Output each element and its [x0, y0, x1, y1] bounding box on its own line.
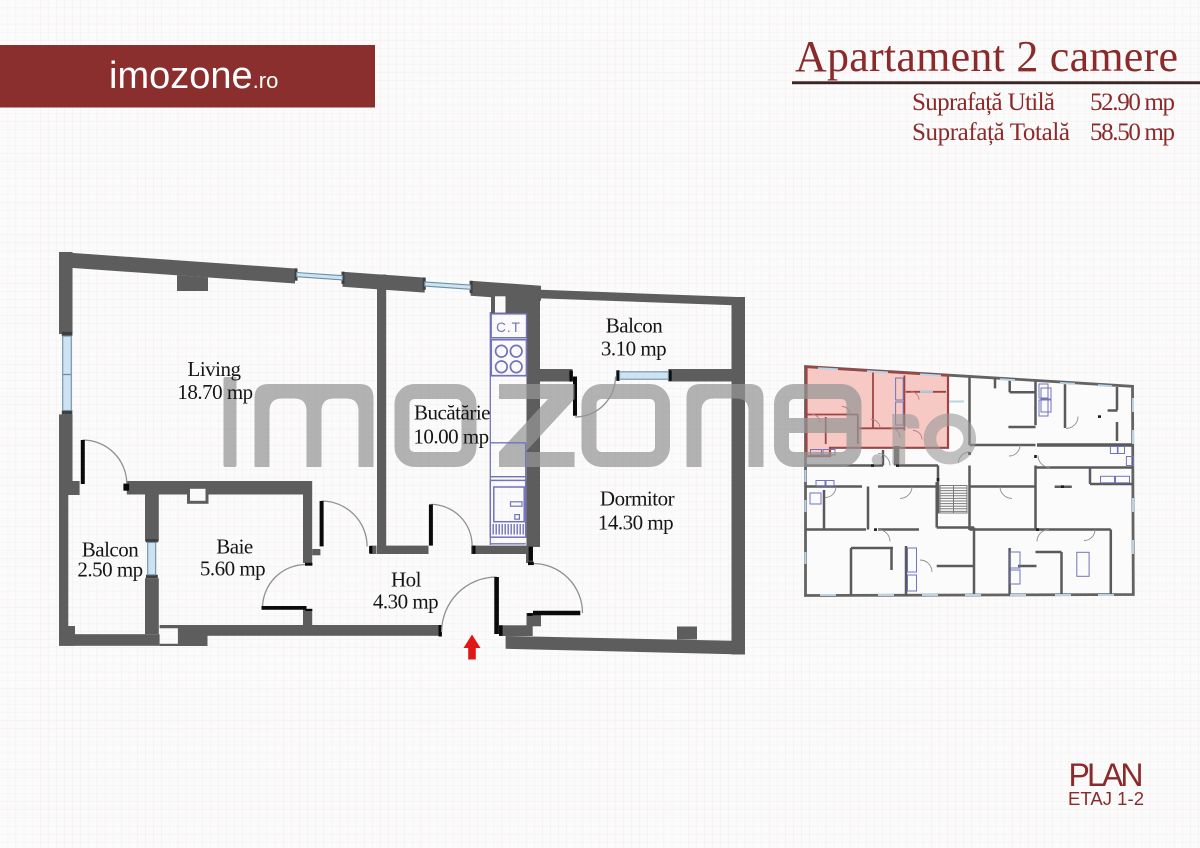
svg-text:Suprafață Utilă: Suprafață Utilă — [912, 89, 1055, 116]
svg-text:3.10 mp: 3.10 mp — [601, 337, 666, 361]
svg-text:58.50 mp: 58.50 mp — [1090, 119, 1175, 146]
svg-text:Suprafață Totală: Suprafață Totală — [912, 119, 1070, 146]
svg-text:Balcon: Balcon — [606, 314, 663, 338]
svg-text:ETAJ 1-2: ETAJ 1-2 — [1068, 788, 1144, 809]
svg-text:10.00 mp: 10.00 mp — [413, 425, 488, 449]
svg-text:Baie: Baie — [216, 535, 253, 559]
svg-text:2.50 mp: 2.50 mp — [77, 558, 142, 582]
svg-text:5.60 mp: 5.60 mp — [200, 557, 265, 581]
svg-text:Dormitor: Dormitor — [600, 487, 675, 511]
svg-text:52.90 mp: 52.90 mp — [1090, 89, 1175, 116]
svg-text:18.70 mp: 18.70 mp — [177, 380, 252, 404]
svg-text:Hol: Hol — [391, 568, 422, 592]
svg-text:Apartament 2 camere: Apartament 2 camere — [795, 32, 1178, 81]
svg-text:Bucătărie: Bucătărie — [414, 401, 490, 425]
svg-text:C.T: C.T — [496, 320, 521, 335]
svg-text:Living: Living — [188, 357, 242, 381]
svg-text:14.30 mp: 14.30 mp — [598, 511, 673, 535]
svg-text:4.30 mp: 4.30 mp — [373, 590, 438, 614]
